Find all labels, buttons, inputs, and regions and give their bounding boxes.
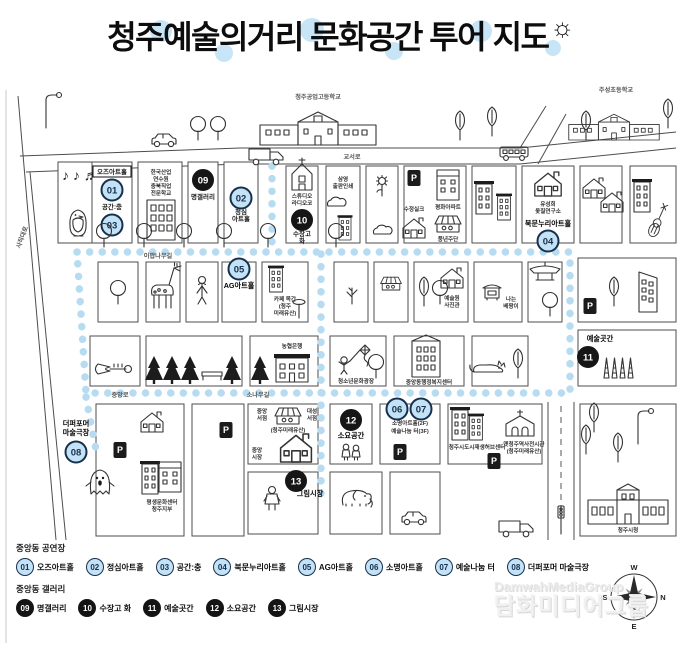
- bus-icon: [500, 147, 528, 160]
- svg-text:09: 09: [198, 175, 209, 186]
- legend-badge-06: 06: [365, 558, 383, 576]
- venue-jeongsim-art-hall: 02 정심 아트홀: [231, 188, 252, 224]
- parking-icon: P: [220, 422, 233, 438]
- svg-text:마술극장: 마술극장: [63, 428, 90, 437]
- svg-text:북문누리아트홀: 북문누리아트홀: [525, 219, 572, 228]
- svg-text:연수원: 연수원: [153, 175, 168, 183]
- svg-text:08: 08: [71, 447, 82, 458]
- badge-08: 08: [66, 442, 87, 463]
- svg-text:07: 07: [416, 404, 427, 415]
- legend-item: 11예술곳간: [143, 599, 193, 617]
- road-jungang-label: 중앙로: [111, 391, 128, 399]
- svg-text:(청주: (청주: [279, 302, 291, 310]
- svg-text:(청주미래유산): (청주미래유산): [507, 447, 542, 455]
- legend-badge-03: 03: [156, 558, 174, 576]
- badge-02: 02: [231, 188, 252, 209]
- badge-07: 07: [411, 399, 432, 420]
- svg-text:베짱이: 베짱이: [503, 302, 518, 310]
- svg-text:예술나눔 터(3F): 예술나눔 터(3F): [391, 427, 429, 435]
- truck-icon: [499, 521, 533, 537]
- legend-badge-02: 02: [86, 558, 104, 576]
- svg-text:(청주미래유산): (청주미래유산): [271, 426, 306, 434]
- svg-text:AG아트홀: AG아트홀: [224, 281, 255, 290]
- svg-text:P: P: [411, 173, 417, 183]
- svg-text:그림시장: 그림시장: [297, 489, 324, 498]
- legend-badge-04: 04: [213, 558, 231, 576]
- svg-text:중앙동행정복지센터: 중앙동행정복지센터: [406, 378, 452, 386]
- legend-label: 공간:충: [177, 562, 202, 573]
- tree-icon: [582, 111, 591, 140]
- tree-icon: [456, 111, 465, 140]
- svg-text:명갤러리: 명갤러리: [191, 192, 215, 201]
- svg-text:청소년문화광장: 청소년문화광장: [338, 377, 375, 385]
- legend-row-galleries: 09명갤러리 10수장고 화 11예술곳간 12소요공간 13그림시장: [16, 599, 589, 617]
- svg-text:나는: 나는: [506, 295, 516, 303]
- legend-label: 소요공간: [227, 603, 256, 614]
- road-sonamu-label: 소나무길: [247, 391, 270, 399]
- svg-text:전문학교: 전문학교: [151, 189, 172, 197]
- legend-badge-13: 13: [268, 599, 286, 617]
- parking-icon: P: [114, 442, 127, 458]
- badge-01: 01: [102, 180, 123, 201]
- legend-label: AG아트홀: [319, 562, 353, 573]
- svg-text:옻칠연구소: 옻칠연구소: [535, 207, 561, 215]
- legend-item: 05AG아트홀: [298, 558, 353, 576]
- badge-10: 10: [292, 210, 313, 231]
- svg-text:대성: 대성: [307, 407, 317, 415]
- legend-row1-title: 중앙동 공연장: [16, 542, 589, 554]
- badge-12: 12: [341, 410, 362, 431]
- legend-label: 정심아트홀: [107, 562, 144, 573]
- legend-item: 12소요공간: [206, 599, 256, 617]
- legend-label: 더퍼포머 마술극장: [528, 562, 589, 573]
- school-right-label: 주성초등학교: [599, 86, 633, 94]
- badge-05: 05: [229, 259, 250, 280]
- svg-text:예술원: 예술원: [444, 294, 459, 302]
- tree-icon: [488, 107, 497, 136]
- badge-09: 09: [193, 170, 214, 191]
- svg-text:소명아트홀(2F): 소명아트홀(2F): [392, 419, 428, 427]
- page-title: 청주예술의거리 문화공간 투어 지도☼: [0, 12, 680, 58]
- svg-text:06: 06: [392, 404, 403, 415]
- svg-text:청주시도시재생허브센터: 청주시도시재생허브센터: [449, 443, 506, 451]
- parking-icon: P: [488, 453, 501, 469]
- svg-text:사진관: 사진관: [444, 301, 460, 309]
- legend-label: 예술나눔 터: [456, 562, 495, 573]
- compass-s: S: [602, 593, 607, 602]
- svg-text:서점: 서점: [307, 414, 317, 422]
- venue-gonggan-chung: 공간:충: [102, 202, 122, 211]
- road-sajik-label: 사직대로: [14, 225, 29, 249]
- car-icon: [152, 134, 176, 147]
- badge-06: 06: [387, 399, 408, 420]
- compass-e: E: [631, 622, 636, 631]
- svg-text:평화아파트: 평화아파트: [435, 203, 461, 211]
- legend-label: 그림시장: [289, 603, 318, 614]
- svg-text:스튜디오: 스튜디오: [292, 192, 313, 200]
- school-top-label: 청주공업고등학교: [295, 93, 341, 101]
- road-ipap-label: 이팝나무길: [144, 252, 173, 260]
- svg-text:서점: 서점: [257, 414, 267, 422]
- parking-icon: P: [408, 170, 421, 186]
- badge-11: 11: [578, 347, 599, 368]
- legend-row2-title: 중앙동 갤러리: [16, 583, 589, 595]
- legend-label: 소명아트홀: [386, 562, 423, 573]
- legend-item: 01오즈아트홀: [16, 558, 74, 576]
- compass-rose: W N E S: [602, 563, 665, 631]
- truck-icon: [249, 149, 283, 165]
- street-lamp-icon: [46, 93, 62, 129]
- svg-text:01: 01: [107, 185, 118, 196]
- legend-badge-01: 01: [16, 558, 34, 576]
- legend-item: 02정심아트홀: [86, 558, 144, 576]
- svg-text:삼영: 삼영: [338, 175, 348, 183]
- svg-text:P: P: [117, 445, 123, 455]
- svg-text:출판인쇄: 출판인쇄: [333, 182, 354, 190]
- legend-item: 13그림시장: [268, 599, 318, 617]
- legend-badge-12: 12: [206, 599, 224, 617]
- svg-text:오즈아트홀: 오즈아트홀: [97, 167, 127, 176]
- svg-text:중앙: 중앙: [257, 407, 268, 415]
- sun-icon: ☼: [550, 12, 572, 42]
- svg-text:한국산업: 한국산업: [151, 168, 172, 176]
- legend-label: 수장고 화: [99, 603, 131, 614]
- tree-icon: [664, 99, 673, 128]
- legend-item: 04북문누리아트홀: [213, 558, 286, 576]
- svg-text:아트홀: 아트홀: [232, 214, 250, 223]
- svg-text:화: 화: [299, 236, 305, 245]
- svg-text:04: 04: [543, 236, 554, 247]
- svg-text:더퍼포머: 더퍼포머: [63, 419, 89, 428]
- map-page: 청주예술의거리 문화공간 투어 지도☼: [0, 0, 680, 645]
- legend-label: 오즈아트홀: [37, 562, 74, 573]
- legend-item: 07예술나눔 터: [435, 558, 495, 576]
- svg-text:03: 03: [107, 220, 118, 231]
- svg-text:풍년주단: 풍년주단: [438, 235, 459, 243]
- svg-text:유성희: 유성희: [540, 200, 555, 208]
- legend-badge-11: 11: [143, 599, 161, 617]
- legend-item: 08더퍼포머 마술극장: [507, 558, 589, 576]
- svg-text:시장: 시장: [252, 453, 263, 461]
- svg-text:수장고: 수장고: [293, 229, 311, 238]
- legend-badge-08: 08: [507, 558, 525, 576]
- svg-text:라디오코: 라디오코: [292, 199, 313, 207]
- legend-badge-05: 05: [298, 558, 316, 576]
- legend-badge-09: 09: [16, 599, 34, 617]
- venue-myeong-gallery: 09 명갤러리: [191, 170, 215, 202]
- svg-text:미래유산): 미래유산): [274, 309, 297, 317]
- school-building-icon: [569, 114, 659, 140]
- legend-item: 06소명아트홀: [365, 558, 423, 576]
- svg-text:P: P: [587, 301, 593, 311]
- title-text: 청주예술의거리 문화공간 투어 지도: [107, 19, 548, 55]
- legend-item: 09명갤러리: [16, 599, 66, 617]
- svg-text:13: 13: [291, 476, 302, 487]
- svg-text:P: P: [397, 447, 403, 457]
- svg-text:농협은행: 농협은행: [282, 342, 303, 350]
- legend-label: 예술곳간: [164, 603, 193, 614]
- tree-icon: [211, 117, 226, 141]
- svg-text:12: 12: [346, 415, 357, 426]
- parking-icon: P: [584, 298, 597, 314]
- legend-badge-07: 07: [435, 558, 453, 576]
- svg-text:충북직업: 충북직업: [151, 182, 172, 190]
- tree-icon: [191, 117, 206, 141]
- svg-text:02: 02: [236, 193, 247, 204]
- badge-03: 03: [102, 215, 123, 236]
- legend-badge-10: 10: [78, 599, 96, 617]
- svg-text:소요공간: 소요공간: [338, 431, 365, 440]
- svg-text:중앙: 중앙: [252, 446, 263, 454]
- compass-w: W: [630, 563, 638, 572]
- legend-row-performance-halls: 01오즈아트홀 02정심아트홀 03공간:충 04북문누리아트홀 05AG아트홀…: [16, 558, 589, 576]
- legend-item: 10수장고 화: [78, 599, 131, 617]
- legend-label: 명갤러리: [37, 603, 66, 614]
- svg-text:정심: 정심: [235, 207, 247, 216]
- svg-text:P: P: [491, 456, 497, 466]
- compass-n: N: [660, 593, 665, 602]
- legend-label: 북문누리아트홀: [234, 562, 286, 573]
- badge-04: 04: [538, 231, 559, 252]
- svg-text:청주지부: 청주지부: [152, 505, 173, 513]
- svg-text:10: 10: [297, 215, 308, 226]
- legend: 중앙동 공연장 01오즈아트홀 02정심아트홀 03공간:충 04북문누리아트홀…: [16, 542, 589, 624]
- svg-text:평생문화센터: 평생문화센터: [147, 498, 178, 506]
- svg-text:수정실크: 수정실크: [404, 205, 425, 213]
- svg-text:옛청주역사전시관: 옛청주역사전시관: [503, 440, 545, 448]
- svg-text:05: 05: [234, 264, 245, 275]
- svg-text:P: P: [223, 425, 229, 435]
- music-notes-icon: ♪ ♪ ♬: [62, 167, 98, 183]
- parking-icon: P: [394, 444, 407, 460]
- school-building-icon: [260, 112, 376, 145]
- svg-text:11: 11: [583, 352, 594, 363]
- legend-item: 03공간:충: [156, 558, 202, 576]
- road-gyoseo-label: 교서로: [343, 153, 360, 161]
- svg-text:청주시청: 청주시청: [618, 526, 639, 534]
- traffic-light-icon: [558, 506, 564, 534]
- svg-text:예술곳간: 예술곳간: [587, 334, 614, 343]
